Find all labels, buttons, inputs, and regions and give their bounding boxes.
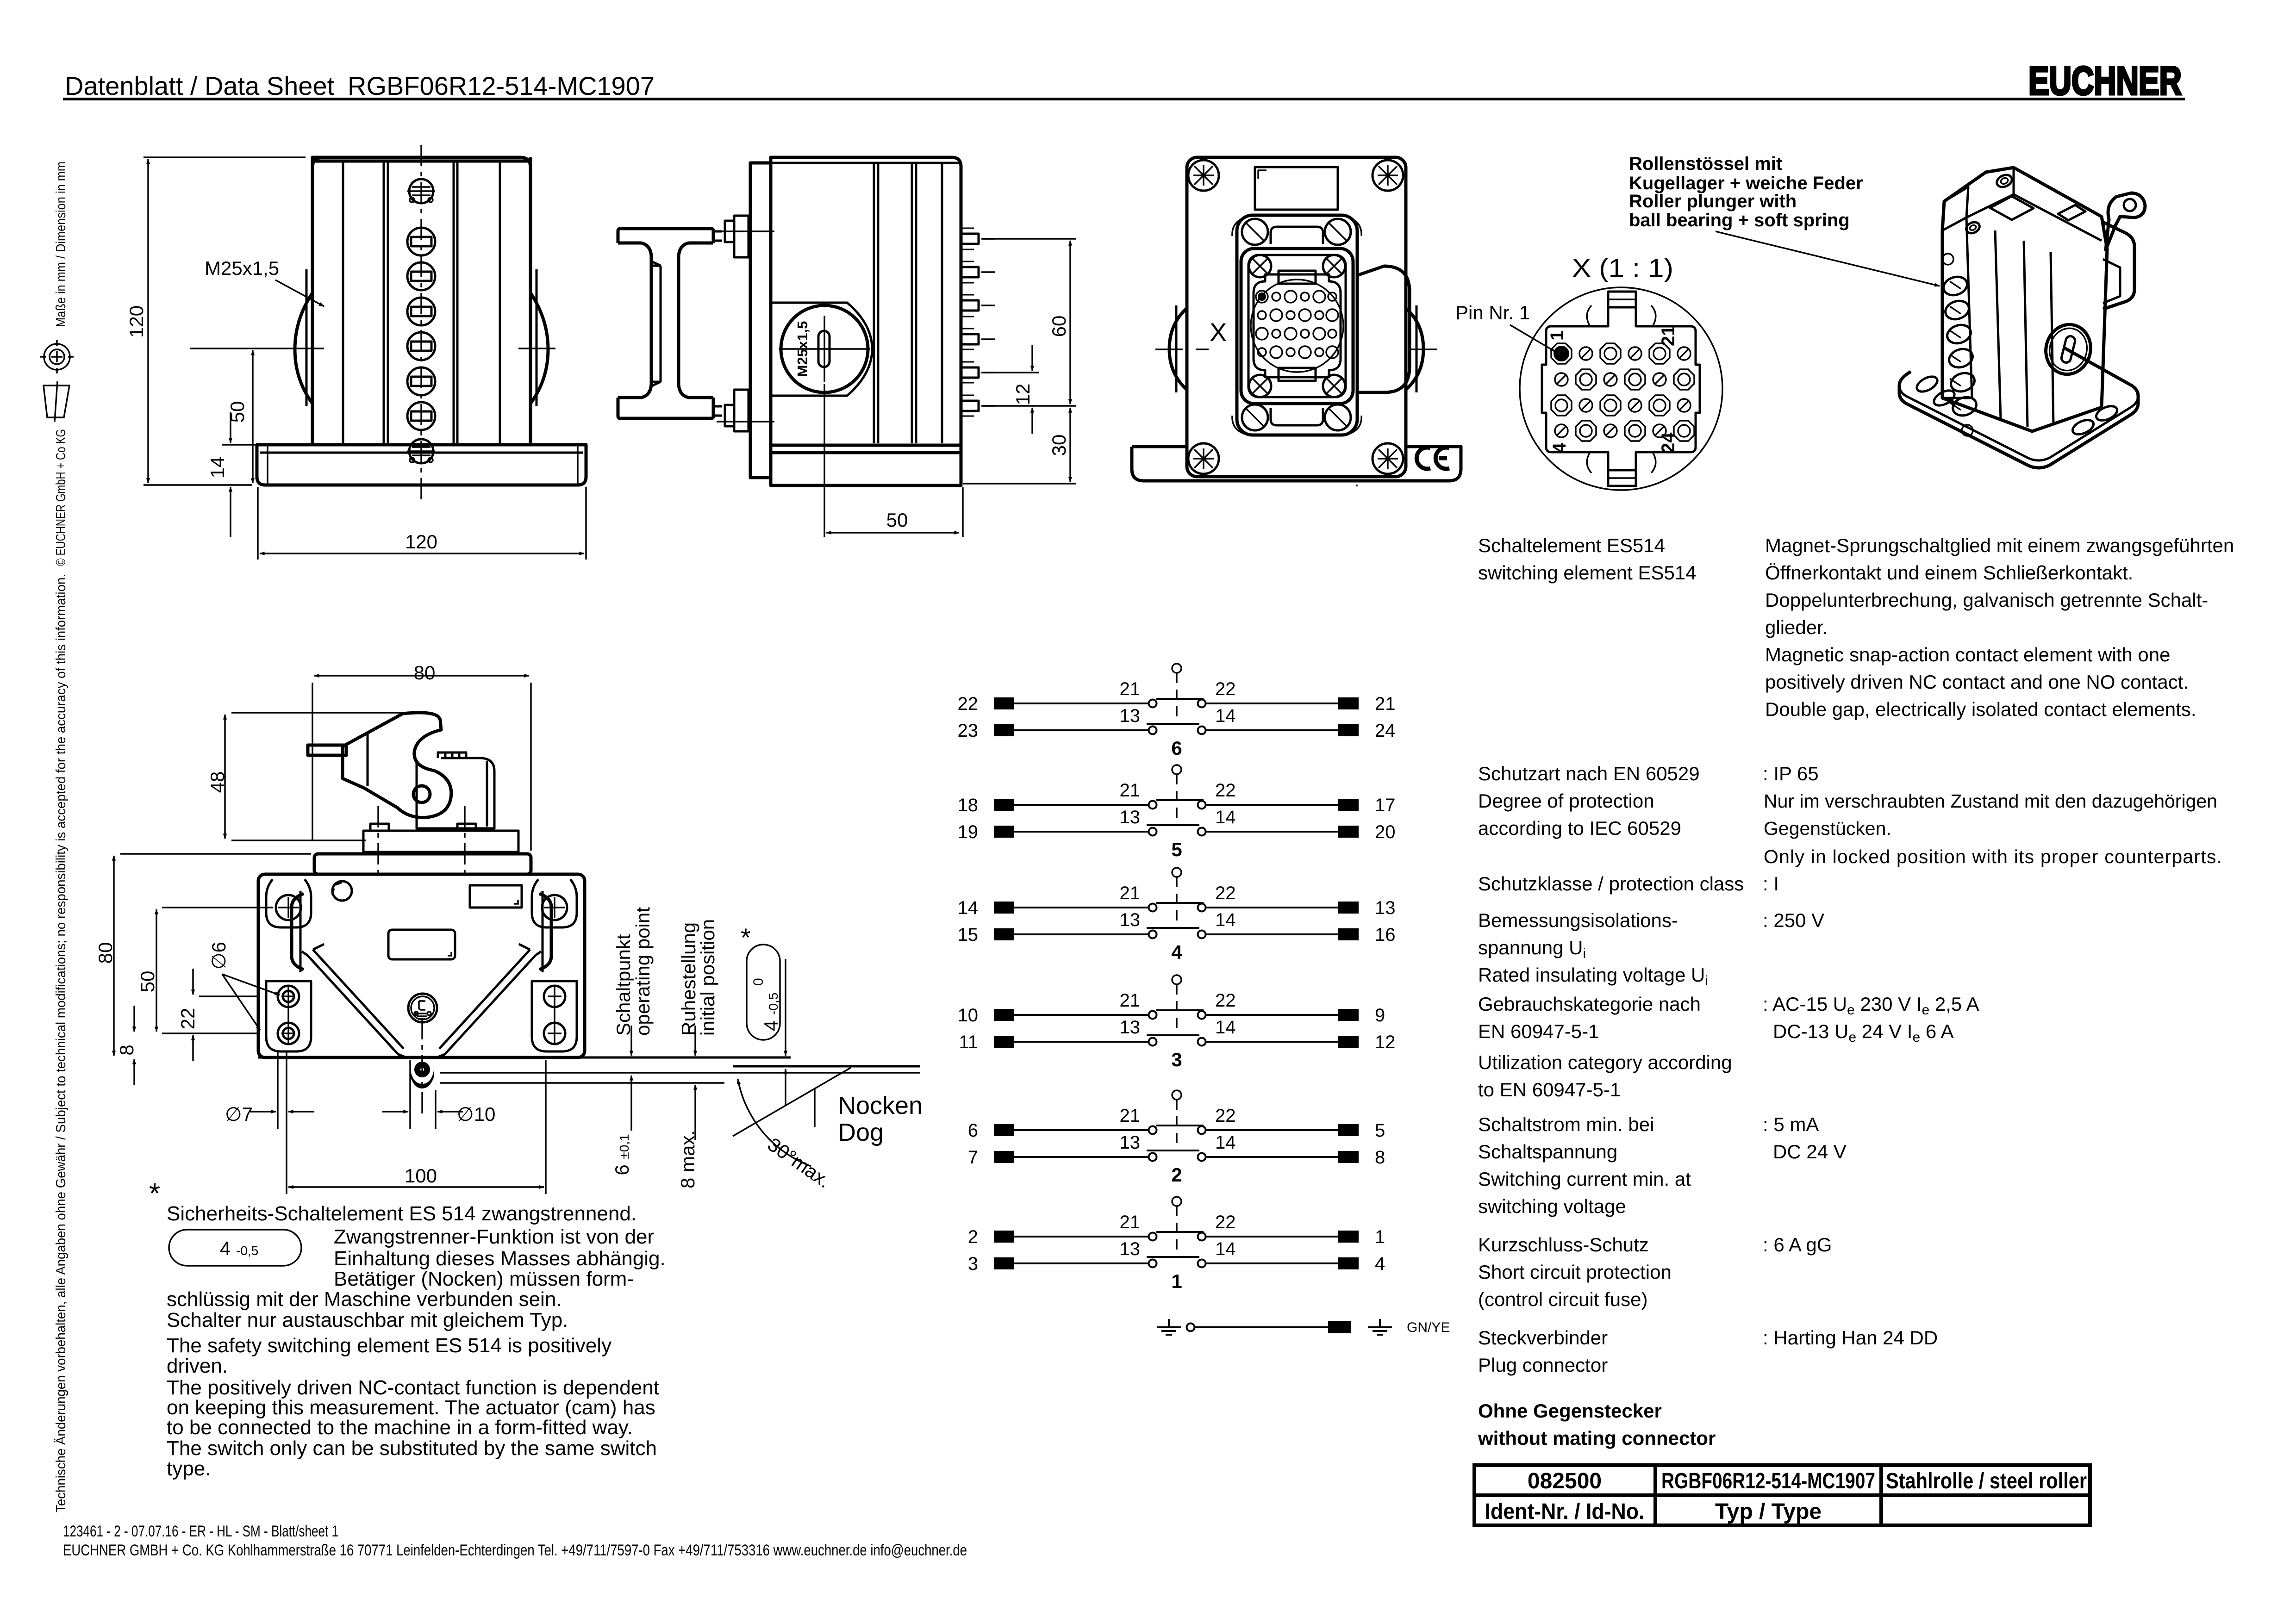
svg-text:17: 17 (1375, 795, 1396, 815)
svg-text:6: 6 (968, 1120, 978, 1141)
svg-text:8 max.: 8 max. (677, 1130, 699, 1188)
svg-text:4 -0,5: 4 -0,5 (760, 993, 782, 1031)
svg-text:Doppelunterbrechung, galvanisc: Doppelunterbrechung, galvanisch getrennt… (1765, 589, 2208, 611)
svg-text:30°max.: 30°max. (764, 1133, 835, 1192)
svg-text:Schalter nur austauschbar mit: Schalter nur austauschbar mit gleichem T… (167, 1309, 568, 1331)
svg-text:: Harting Han 24 DD: : Harting Han 24 DD (1763, 1327, 1938, 1349)
svg-text:2: 2 (1171, 1164, 1182, 1186)
svg-text:Maße in mm / Dimension in mm: Maße in mm / Dimension in mm (54, 162, 69, 327)
svg-text:22: 22 (1215, 1106, 1236, 1126)
svg-text:Sicherheits-Schaltelement ES 5: Sicherheits-Schaltelement ES 514 zwangst… (167, 1202, 636, 1225)
svg-text:Schutzklasse / protection clas: Schutzklasse / protection class (1478, 873, 1744, 895)
svg-text:22: 22 (958, 694, 979, 714)
svg-text:without mating connector: without mating connector (1478, 1427, 1716, 1449)
svg-text:2: 2 (968, 1227, 978, 1247)
svg-text:Schaltspannung: Schaltspannung (1478, 1141, 1617, 1163)
svg-text:14: 14 (1215, 1239, 1236, 1259)
svg-text:Kurzschluss-Schutz: Kurzschluss-Schutz (1478, 1234, 1649, 1256)
svg-text:22: 22 (1215, 780, 1236, 801)
svg-text:: IP 65: : IP 65 (1763, 763, 1819, 784)
svg-text:RGBF06R12-514-MC1907: RGBF06R12-514-MC1907 (1661, 1469, 1875, 1493)
svg-text:Kugellager + weiche Feder: Kugellager + weiche Feder (1629, 173, 1863, 193)
svg-text:80: 80 (414, 662, 436, 684)
svg-text:: 6 A gG: : 6 A gG (1763, 1234, 1832, 1256)
svg-text:50: 50 (226, 401, 248, 423)
svg-text:© EUCHNER GmbH + Co KG: © EUCHNER GmbH + Co KG (54, 429, 69, 566)
svg-text:10: 10 (958, 1005, 979, 1026)
svg-text:21: 21 (1120, 1106, 1141, 1126)
svg-text:12: 12 (1375, 1032, 1396, 1052)
svg-text:Gebrauchskategorie nach: Gebrauchskategorie nach (1478, 993, 1701, 1015)
svg-text:14: 14 (1215, 910, 1236, 930)
svg-text:5: 5 (1375, 1120, 1385, 1141)
svg-text:Switching current min. at: Switching current min. at (1478, 1168, 1691, 1190)
svg-text:Nocken: Nocken (838, 1092, 923, 1119)
svg-text:on keeping this measurement. T: on keeping this measurement. The actuato… (167, 1396, 655, 1419)
svg-text:8: 8 (1375, 1147, 1385, 1168)
svg-text:Schutzart nach EN 60529: Schutzart nach EN 60529 (1478, 763, 1700, 784)
svg-text:13: 13 (1120, 706, 1141, 726)
svg-text:X (1 : 1): X (1 : 1) (1572, 253, 1673, 282)
svg-text:21: 21 (1120, 679, 1141, 699)
svg-text:Degree of protection: Degree of protection (1478, 790, 1654, 812)
svg-text:Zwangstrenner-Funktion ist von: Zwangstrenner-Funktion ist von der (334, 1225, 654, 1248)
svg-text:8: 8 (116, 1045, 137, 1055)
svg-text:: 250 V: : 250 V (1763, 909, 1824, 931)
svg-text:DC-13 Ue 24 V Ie 6 A: DC-13 Ue 24 V Ie 6 A (1773, 1020, 1954, 1045)
svg-text:Öffnerkontakt und einem Schlie: Öffnerkontakt und einem Schließerkontakt… (1765, 562, 2133, 584)
svg-text:14: 14 (1215, 706, 1236, 726)
svg-text:Dog: Dog (838, 1119, 884, 1146)
svg-text:switching element ES514: switching element ES514 (1478, 562, 1697, 584)
svg-text:positively driven NC contact a: positively driven NC contact and one NO … (1765, 671, 2189, 693)
svg-text:Short circuit protection: Short circuit protection (1478, 1261, 1672, 1283)
svg-text:4: 4 (1549, 442, 1570, 453)
svg-text:Datenblatt / Data Sheet: Datenblatt / Data Sheet (65, 71, 335, 100)
svg-text:DC 24 V: DC 24 V (1773, 1141, 1847, 1163)
svg-text:7: 7 (968, 1147, 978, 1168)
svg-text:1: 1 (1547, 330, 1567, 341)
svg-text:Steckverbinder: Steckverbinder (1478, 1327, 1608, 1349)
svg-text:to EN 60947-5-1: to EN 60947-5-1 (1478, 1079, 1621, 1101)
svg-text:EN 60947-5-1: EN 60947-5-1 (1478, 1020, 1599, 1042)
svg-text:11: 11 (959, 1032, 978, 1052)
svg-text:Rollenstössel mit: Rollenstössel mit (1629, 154, 1782, 174)
svg-text:The positively driven NC-conta: The positively driven NC-contact functio… (167, 1376, 659, 1399)
svg-text:Schaltelement ES514: Schaltelement ES514 (1478, 535, 1665, 556)
svg-text:6: 6 (1171, 737, 1182, 759)
svg-text:22: 22 (1215, 990, 1236, 1011)
svg-text:13: 13 (1120, 1132, 1141, 1153)
svg-text:21: 21 (1658, 326, 1678, 347)
svg-text:100: 100 (405, 1165, 437, 1187)
svg-text:14: 14 (206, 457, 228, 479)
svg-text:4: 4 (1375, 1254, 1385, 1274)
svg-text:The switch only can be substit: The switch only can be substituted by th… (167, 1437, 657, 1460)
svg-text:: I: : I (1763, 873, 1779, 895)
svg-text:4: 4 (1171, 941, 1182, 963)
svg-text:Plug connector: Plug connector (1478, 1354, 1608, 1376)
svg-text:50: 50 (886, 509, 908, 531)
svg-text:22: 22 (177, 1008, 199, 1030)
svg-text:120: 120 (125, 305, 147, 338)
svg-text:Roller plunger with: Roller plunger with (1629, 191, 1797, 211)
svg-text:The safety switching element E: The safety switching element ES 514 is p… (167, 1334, 611, 1357)
svg-text:M25x1,5: M25x1,5 (794, 321, 811, 377)
svg-text:9: 9 (1375, 1005, 1385, 1026)
svg-text:1: 1 (1171, 1270, 1182, 1292)
svg-text:Ohne Gegenstecker: Ohne Gegenstecker (1478, 1400, 1662, 1422)
svg-text:Pin Nr. 1: Pin Nr. 1 (1455, 302, 1530, 323)
svg-text:23: 23 (958, 721, 979, 741)
svg-text:15: 15 (958, 925, 979, 945)
svg-text:Schaltstrom min. bei: Schaltstrom min. bei (1478, 1113, 1654, 1135)
svg-text:60: 60 (1048, 316, 1070, 337)
svg-text:24: 24 (1658, 432, 1678, 453)
svg-text:24: 24 (1375, 721, 1396, 741)
svg-text:14: 14 (958, 898, 979, 918)
svg-text:EUCHNER: EUCHNER (2028, 59, 2182, 103)
svg-text:Ruhestellung: Ruhestellung (678, 922, 699, 1036)
svg-text:Gegenstücken.: Gegenstücken. (1764, 818, 1891, 839)
svg-text:1: 1 (1375, 1227, 1385, 1247)
svg-text:according to IEC 60529: according to IEC 60529 (1478, 817, 1681, 839)
svg-text:14: 14 (1215, 1017, 1236, 1038)
svg-text:ball bearing + soft spring: ball bearing + soft spring (1629, 210, 1850, 230)
svg-text:: 5 mA: : 5 mA (1763, 1113, 1819, 1135)
svg-text:glieder.: glieder. (1765, 616, 1828, 638)
svg-text:Only in locked position with i: Only in locked position with its proper … (1764, 846, 2222, 867)
svg-text:∅6: ∅6 (208, 942, 230, 970)
svg-text:5: 5 (1171, 839, 1182, 860)
svg-text:Ident-Nr. / Id-No.: Ident-Nr. / Id-No. (1485, 1499, 1645, 1524)
svg-text:Einhaltung dieses Masses abhän: Einhaltung dieses Masses abhängig. (334, 1247, 666, 1270)
svg-text:16: 16 (1375, 925, 1396, 945)
svg-text:GN/YE: GN/YE (1407, 1320, 1450, 1335)
svg-text:initial position: initial position (697, 919, 718, 1036)
svg-text:20: 20 (1375, 822, 1396, 842)
svg-text:120: 120 (405, 531, 437, 553)
svg-text:123461 - 2 - 07.07.16 - ER - H: 123461 - 2 - 07.07.16 - ER - HL - SM - B… (63, 1523, 338, 1540)
svg-text:13: 13 (1120, 910, 1141, 930)
svg-text:schlüssig mit der Maschine ver: schlüssig mit der Maschine verbunden sei… (167, 1288, 562, 1311)
svg-text:13: 13 (1120, 1017, 1141, 1038)
svg-text:Utilization category according: Utilization category according (1478, 1051, 1732, 1073)
svg-text:48: 48 (206, 771, 228, 793)
svg-text:to be connected to the machine: to be connected to the machine in a form… (167, 1416, 633, 1439)
svg-text:M25x1,5: M25x1,5 (205, 257, 279, 279)
svg-text:Schaltpunkt: Schaltpunkt (612, 934, 634, 1036)
svg-text:: AC-15 Ue 230 V Ie 2,5 A: : AC-15 Ue 230 V Ie 2,5 A (1763, 993, 1979, 1018)
svg-text:14: 14 (1215, 1132, 1236, 1153)
svg-text:3: 3 (968, 1254, 978, 1274)
svg-text:22: 22 (1215, 1212, 1236, 1232)
svg-text:21: 21 (1120, 990, 1141, 1011)
svg-text:13: 13 (1120, 807, 1141, 827)
svg-text:Rated insulating voltage Ui: Rated insulating voltage Ui (1478, 964, 1708, 989)
svg-text:80: 80 (94, 942, 116, 964)
svg-text:14: 14 (1215, 807, 1236, 827)
svg-text:13: 13 (1120, 1239, 1141, 1259)
svg-text:21: 21 (1120, 780, 1141, 801)
svg-text:Bemessungsisolations-: Bemessungsisolations- (1478, 909, 1678, 931)
svg-text:Stahlrolle / steel roller: Stahlrolle / steel roller (1886, 1469, 2087, 1493)
svg-text:Double gap, electrically isola: Double gap, electrically isolated contac… (1765, 698, 2196, 720)
svg-text:∅10: ∅10 (457, 1103, 495, 1125)
svg-text:Nur im verschraubten Zustand m: Nur im verschraubten Zustand mit den daz… (1764, 790, 2217, 812)
svg-text:operating point: operating point (632, 907, 654, 1036)
svg-text:6 ±0,1: 6 ±0,1 (611, 1134, 633, 1175)
svg-text:4 -0,5: 4 -0,5 (220, 1237, 258, 1259)
svg-text:0: 0 (751, 978, 766, 986)
svg-text:22: 22 (1215, 883, 1236, 903)
svg-text:082500: 082500 (1528, 1469, 1602, 1493)
svg-text:3: 3 (1171, 1049, 1182, 1070)
svg-text:18: 18 (958, 795, 979, 815)
svg-text:spannung Ui: spannung Ui (1478, 937, 1586, 961)
svg-text:Technische Änderungen vorbehal: Technische Änderungen vorbehalten, alle … (54, 574, 69, 1512)
svg-text:driven.: driven. (167, 1355, 228, 1377)
svg-text:RGBF06R12-514-MC1907: RGBF06R12-514-MC1907 (348, 71, 655, 100)
svg-text:Typ / Type: Typ / Type (1715, 1499, 1822, 1524)
svg-text:type.: type. (167, 1457, 211, 1480)
svg-text:Magnetic snap-action contact e: Magnetic snap-action contact element wit… (1765, 644, 2171, 665)
svg-text:switching voltage: switching voltage (1478, 1195, 1626, 1217)
svg-text:X: X (1210, 317, 1227, 347)
svg-text:21: 21 (1120, 1212, 1141, 1232)
svg-text:19: 19 (958, 822, 979, 842)
svg-text:13: 13 (1375, 898, 1396, 918)
svg-text:50: 50 (137, 971, 158, 993)
svg-text:21: 21 (1375, 694, 1396, 714)
svg-text:EUCHNER GMBH + Co. KG Kohlha: EUCHNER GMBH + Co. KG Kohlhammerstraße 1… (63, 1542, 967, 1559)
svg-text:12: 12 (1012, 384, 1034, 405)
svg-text:Magnet-Sprungschaltglied mit e: Magnet-Sprungschaltglied mit einem zwang… (1765, 535, 2234, 556)
svg-text:Betätiger (Nocken) müssen form: Betätiger (Nocken) müssen form- (334, 1268, 634, 1290)
svg-text:22: 22 (1215, 679, 1236, 699)
svg-text:21: 21 (1120, 883, 1141, 903)
svg-text:30: 30 (1048, 435, 1070, 456)
svg-text:(control circuit fuse): (control circuit fuse) (1478, 1288, 1647, 1310)
svg-text:*: * (149, 1178, 160, 1210)
svg-text:∅7: ∅7 (225, 1103, 253, 1125)
svg-text:*: * (741, 923, 751, 952)
